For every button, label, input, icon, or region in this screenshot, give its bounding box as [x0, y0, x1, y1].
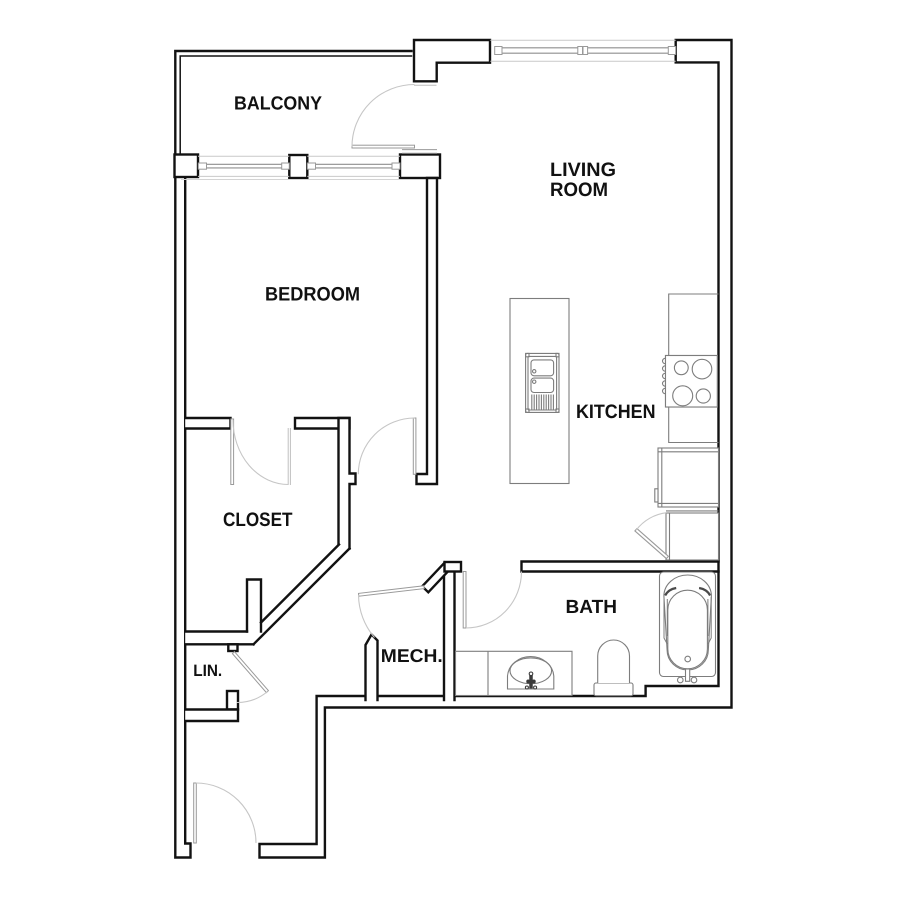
svg-text:BALCONY: BALCONY [234, 94, 322, 115]
svg-text:BATH: BATH [566, 597, 618, 618]
svg-text:BEDROOM: BEDROOM [265, 284, 360, 306]
svg-text:MECH.: MECH. [381, 645, 443, 666]
svg-text:KITCHEN: KITCHEN [576, 401, 656, 423]
svg-text:ROOM: ROOM [550, 179, 608, 201]
svg-text:LIN.: LIN. [193, 662, 222, 680]
svg-text:CLOSET: CLOSET [223, 509, 293, 531]
svg-text:LIVING: LIVING [550, 159, 616, 181]
